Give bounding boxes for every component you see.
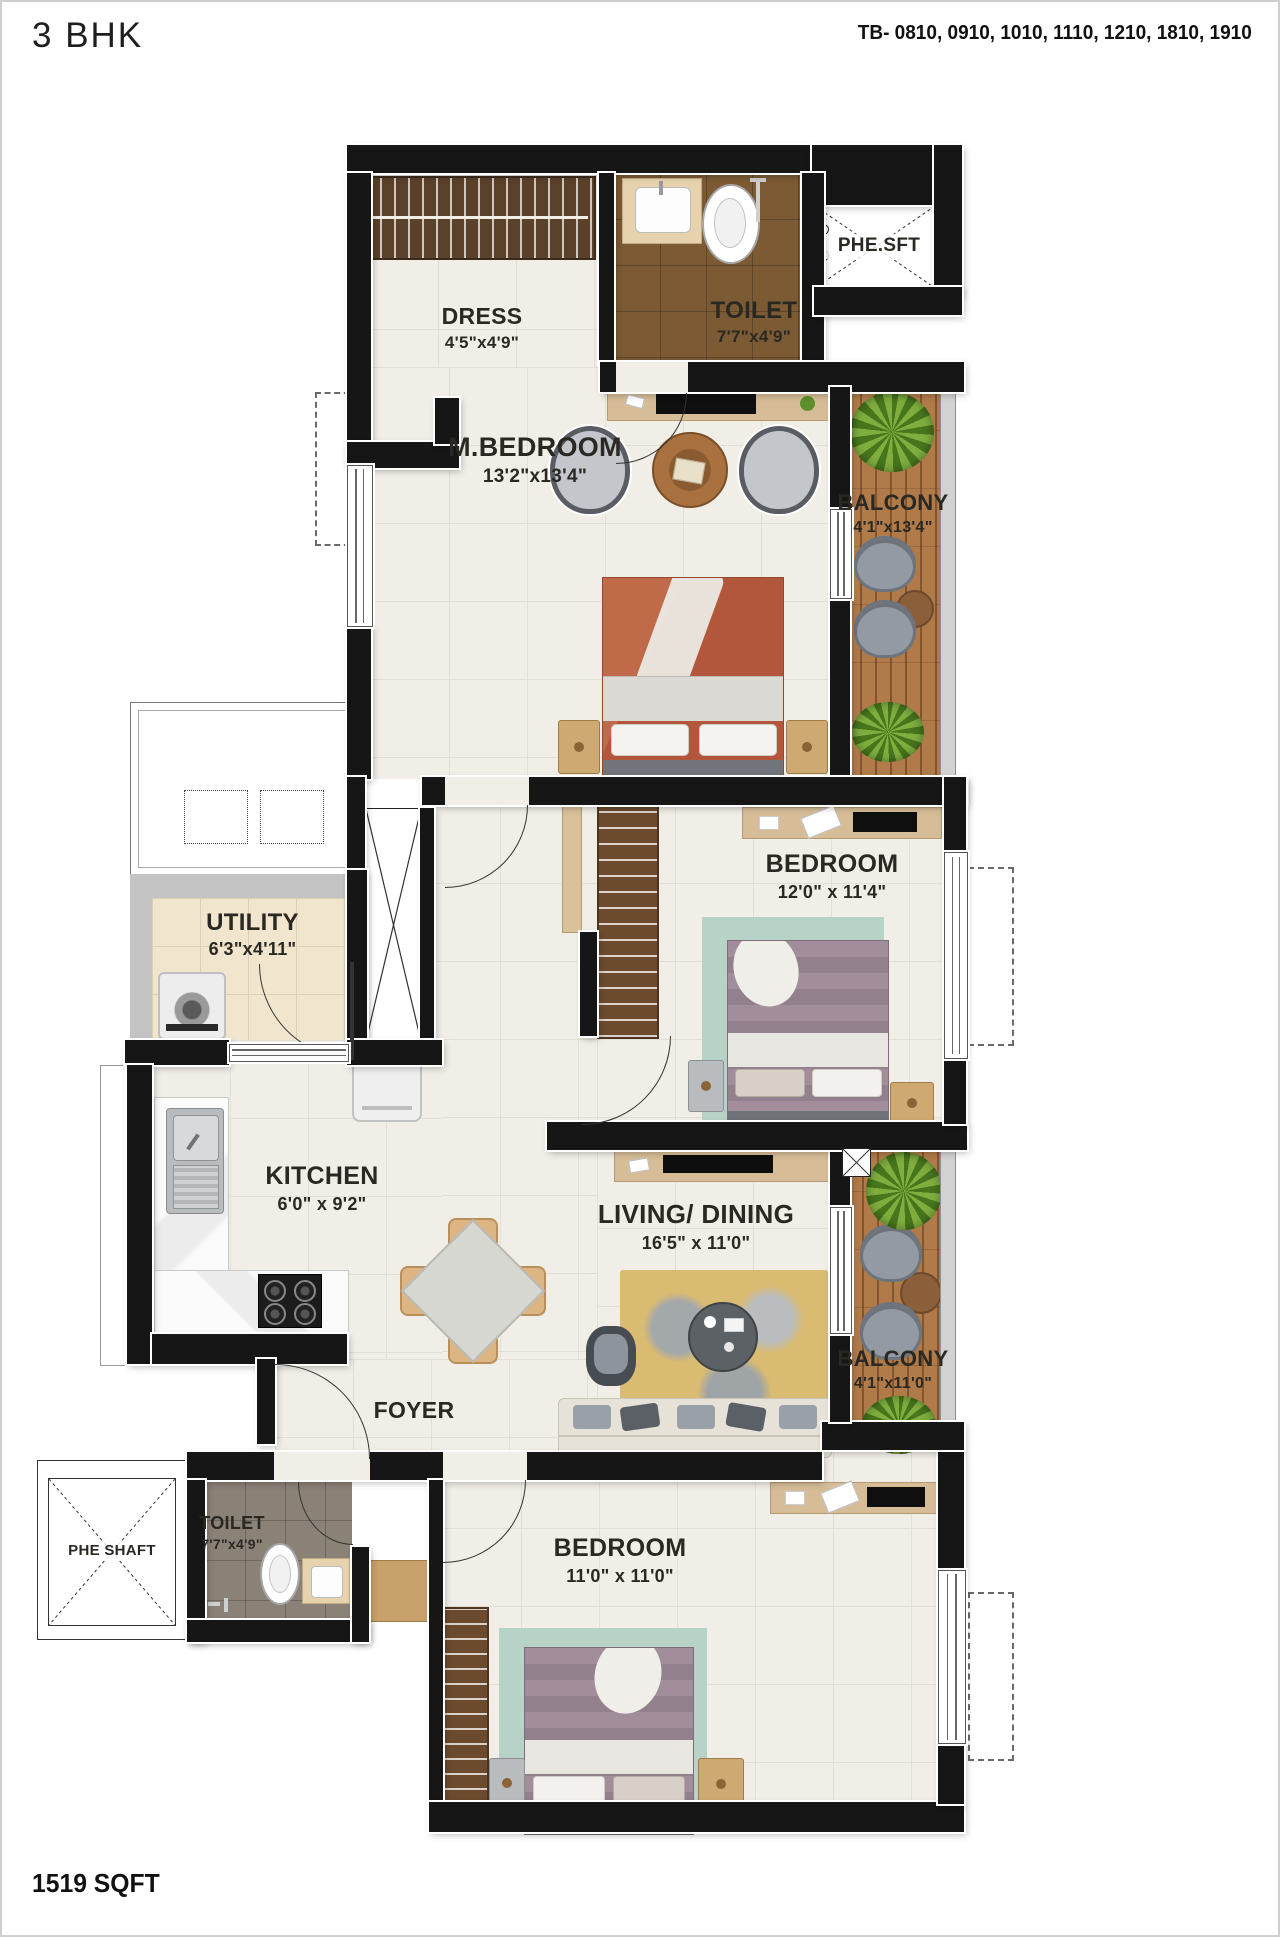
tv-icon [867, 1487, 925, 1507]
phe-sft-box: PHE.SFT [814, 205, 936, 289]
ac-marker [260, 790, 324, 844]
room-name: TOILET [674, 295, 834, 326]
wardrobe-rail [368, 216, 588, 219]
room-label-utility: UTILITY 6'3"x4'11" [170, 907, 335, 962]
desk-console [770, 1482, 942, 1514]
room-name: FOYER [354, 1396, 474, 1426]
toilet-top-sink [622, 178, 702, 244]
wc-seat [714, 198, 746, 248]
sofa [558, 1398, 832, 1458]
wardrobe [597, 805, 659, 1039]
wall [187, 1620, 369, 1642]
page-title: 3 BHK [32, 16, 143, 56]
phe-shaft-box: PHE SHAFT [48, 1478, 176, 1626]
sofa-pillow [573, 1405, 611, 1429]
nightstand [786, 720, 828, 774]
laptop-icon [820, 1480, 860, 1513]
fridge [352, 1060, 422, 1122]
room-name: BEDROOM [742, 848, 922, 881]
wall [347, 625, 371, 779]
balcony-chair [854, 536, 916, 592]
washing-machine [158, 972, 226, 1040]
service-window [229, 1044, 349, 1062]
cup-icon [704, 1316, 716, 1328]
bed [727, 940, 889, 1128]
burner-icon [294, 1303, 316, 1325]
door-opening [616, 362, 688, 392]
dining-table [401, 1219, 545, 1363]
room-dims: 6'0" x 9'2" [242, 1193, 402, 1216]
room-label-bedroom-bottom: BEDROOM 11'0" x 11'0" [520, 1532, 720, 1588]
room-name: BALCONY [830, 1345, 956, 1374]
master-bed [602, 577, 784, 777]
pillow [699, 724, 777, 756]
duct-x-icon [366, 809, 421, 1041]
wall [547, 1122, 967, 1150]
dress-wardrobe [364, 176, 596, 260]
burner-icon [264, 1280, 286, 1302]
balcony-railing [940, 387, 956, 781]
nightstand [558, 720, 600, 774]
room-label-balcony-top: BALCONY 4'1"x13'4" [830, 489, 956, 538]
room-name: UTILITY [170, 907, 335, 938]
room-dims: 7'7"x4'9" [192, 1535, 272, 1553]
wall [125, 1040, 229, 1065]
wall [429, 1802, 964, 1832]
bed-throw [727, 940, 808, 1015]
room-label-toilet-lower: TOILET 7'7"x4'9" [192, 1512, 272, 1554]
pillow [812, 1069, 882, 1097]
wall [347, 173, 371, 465]
wall [257, 1359, 275, 1444]
paper-icon [785, 1491, 805, 1505]
pillow [533, 1776, 605, 1804]
room-label-phe-sft: PHE.SFT [825, 234, 933, 259]
ledge-band-left [130, 874, 152, 1042]
sofa-pillow [677, 1405, 715, 1429]
room-label-kitchen: KITCHEN 6'0" x 9'2" [242, 1160, 402, 1216]
room-name: TOILET [192, 1512, 272, 1535]
wall [347, 145, 812, 173]
armchair [739, 426, 819, 514]
plant-icon [800, 396, 815, 411]
washer-panel [166, 1024, 218, 1031]
door-opening [445, 777, 529, 805]
window [347, 465, 373, 627]
pillow [613, 1776, 685, 1804]
nightstand [489, 1758, 525, 1808]
burner-icon [264, 1303, 286, 1325]
room-label-toilet-top: TOILET 7'7"x4'9" [674, 295, 834, 348]
basin [635, 187, 691, 233]
nightstand [890, 1082, 934, 1124]
room-name: BALCONY [830, 489, 956, 518]
kitchen-ledge [100, 1065, 129, 1366]
wall [814, 287, 962, 315]
sofa-pillow [779, 1405, 817, 1429]
cup-icon [724, 1342, 734, 1352]
drainboard [173, 1165, 219, 1209]
room-name: LIVING/ DINING [572, 1198, 820, 1232]
basin [311, 1566, 343, 1598]
room-dims: 6'3"x4'11" [170, 938, 335, 961]
room-dims: 12'0" x 11'4" [742, 881, 922, 904]
tray-icon [724, 1318, 744, 1332]
kitchen-sink [166, 1108, 224, 1214]
armchair [586, 1326, 636, 1386]
ac-marker [184, 790, 248, 844]
wall [152, 1334, 347, 1364]
wall [822, 1422, 964, 1450]
panel [562, 805, 582, 933]
toilet-lower-sink [302, 1558, 350, 1604]
bed-sheet [525, 1740, 693, 1774]
room-label-dress: DRESS 4'5"x4'9" [402, 302, 562, 354]
room-label-master-bedroom: M.BEDROOM 13'2"x13'4" [410, 430, 660, 490]
sofa-pillow [725, 1402, 767, 1432]
wardrobe [443, 1607, 489, 1807]
wall [934, 145, 962, 295]
wall [420, 808, 434, 1040]
room-name: BEDROOM [520, 1532, 720, 1565]
sofa-seatline [559, 1435, 831, 1437]
pillow [735, 1069, 805, 1097]
wall [187, 1480, 205, 1642]
shoe-cabinet [369, 1560, 429, 1622]
shower-icon [208, 1596, 238, 1614]
room-name: M.BEDROOM [410, 430, 660, 465]
burner-icon [294, 1280, 316, 1302]
wall [599, 173, 614, 365]
armchair-seat [594, 1334, 628, 1374]
dining-set [400, 1218, 542, 1360]
wall [127, 1065, 152, 1364]
room-label-phe-shaft: PHE SHAFT [53, 1541, 171, 1561]
book-icon [672, 458, 705, 485]
room-name: KITCHEN [242, 1160, 402, 1193]
door-opening [443, 1452, 527, 1480]
wc-seat [269, 1555, 291, 1593]
remote-icon [628, 1157, 650, 1173]
plant-icon [852, 702, 924, 762]
tv-icon [663, 1155, 773, 1173]
window [944, 852, 968, 1059]
coffee-table [688, 1302, 758, 1372]
room-dims: 11'0" x 11'0" [520, 1565, 720, 1588]
window [938, 1570, 966, 1744]
nightstand [688, 1060, 724, 1112]
room-dims: 13'2"x13'4" [410, 465, 660, 490]
room-dims: 7'7"x4'9" [674, 326, 834, 348]
wall [352, 1547, 369, 1642]
desk-console [742, 807, 942, 839]
projection-marker [968, 867, 1014, 1046]
ac-unit-box [842, 1148, 871, 1177]
room-name: DRESS [402, 302, 562, 332]
plant-icon [850, 392, 934, 472]
wall [347, 1040, 442, 1065]
unit-codes: TB- 0810, 0910, 1010, 1110, 1210, 1810, … [858, 22, 1252, 45]
tv-console [614, 1150, 838, 1182]
tv-icon [853, 812, 917, 832]
room-dims: 4'1"x13'4" [830, 518, 956, 539]
pillow [611, 724, 689, 756]
ledge-box-inner [138, 710, 352, 868]
duct-shaft [365, 808, 422, 1042]
ledge-band [130, 874, 372, 898]
bed-sheet [728, 1033, 888, 1067]
gas-hob [258, 1274, 322, 1328]
floor-plan-page: 3 BHK TB- 0810, 0910, 1010, 1110, 1210, … [0, 0, 1280, 1937]
faucet-icon [659, 181, 663, 195]
fridge-handle [362, 1106, 412, 1110]
wall [830, 597, 850, 779]
balcony-chair [860, 1224, 922, 1282]
wall [812, 145, 934, 205]
sliding-door [830, 1207, 852, 1334]
balcony-chair [854, 600, 916, 658]
wall [429, 1480, 443, 1804]
door-leaf [350, 962, 354, 1060]
room-label-living-dining: LIVING/ DINING 16'5" x 11'0" [572, 1198, 820, 1255]
bed-sheet [603, 676, 783, 721]
room-label-bedroom-mid: BEDROOM 12'0" x 11'4" [742, 848, 922, 904]
wall [580, 932, 597, 1036]
room-dims: 4'5"x4'9" [402, 332, 562, 354]
plant-icon [866, 1152, 942, 1230]
room-dims: 16'5" x 11'0" [572, 1232, 820, 1255]
laptop-icon [800, 805, 842, 839]
shower-icon [746, 178, 772, 232]
room-label-foyer: FOYER [354, 1396, 474, 1426]
projection-marker [968, 1592, 1014, 1761]
room-dims: 4'1"x11'0" [830, 1374, 956, 1395]
total-area: 1519 SQFT [32, 1868, 160, 1899]
room-label-balcony-lower: BALCONY 4'1"x11'0" [830, 1345, 956, 1394]
paper-icon [759, 816, 779, 830]
x-icon [843, 1149, 870, 1176]
bed-bench [603, 760, 783, 776]
bed-throw [586, 1647, 671, 1722]
sofa-pillow [620, 1402, 661, 1431]
